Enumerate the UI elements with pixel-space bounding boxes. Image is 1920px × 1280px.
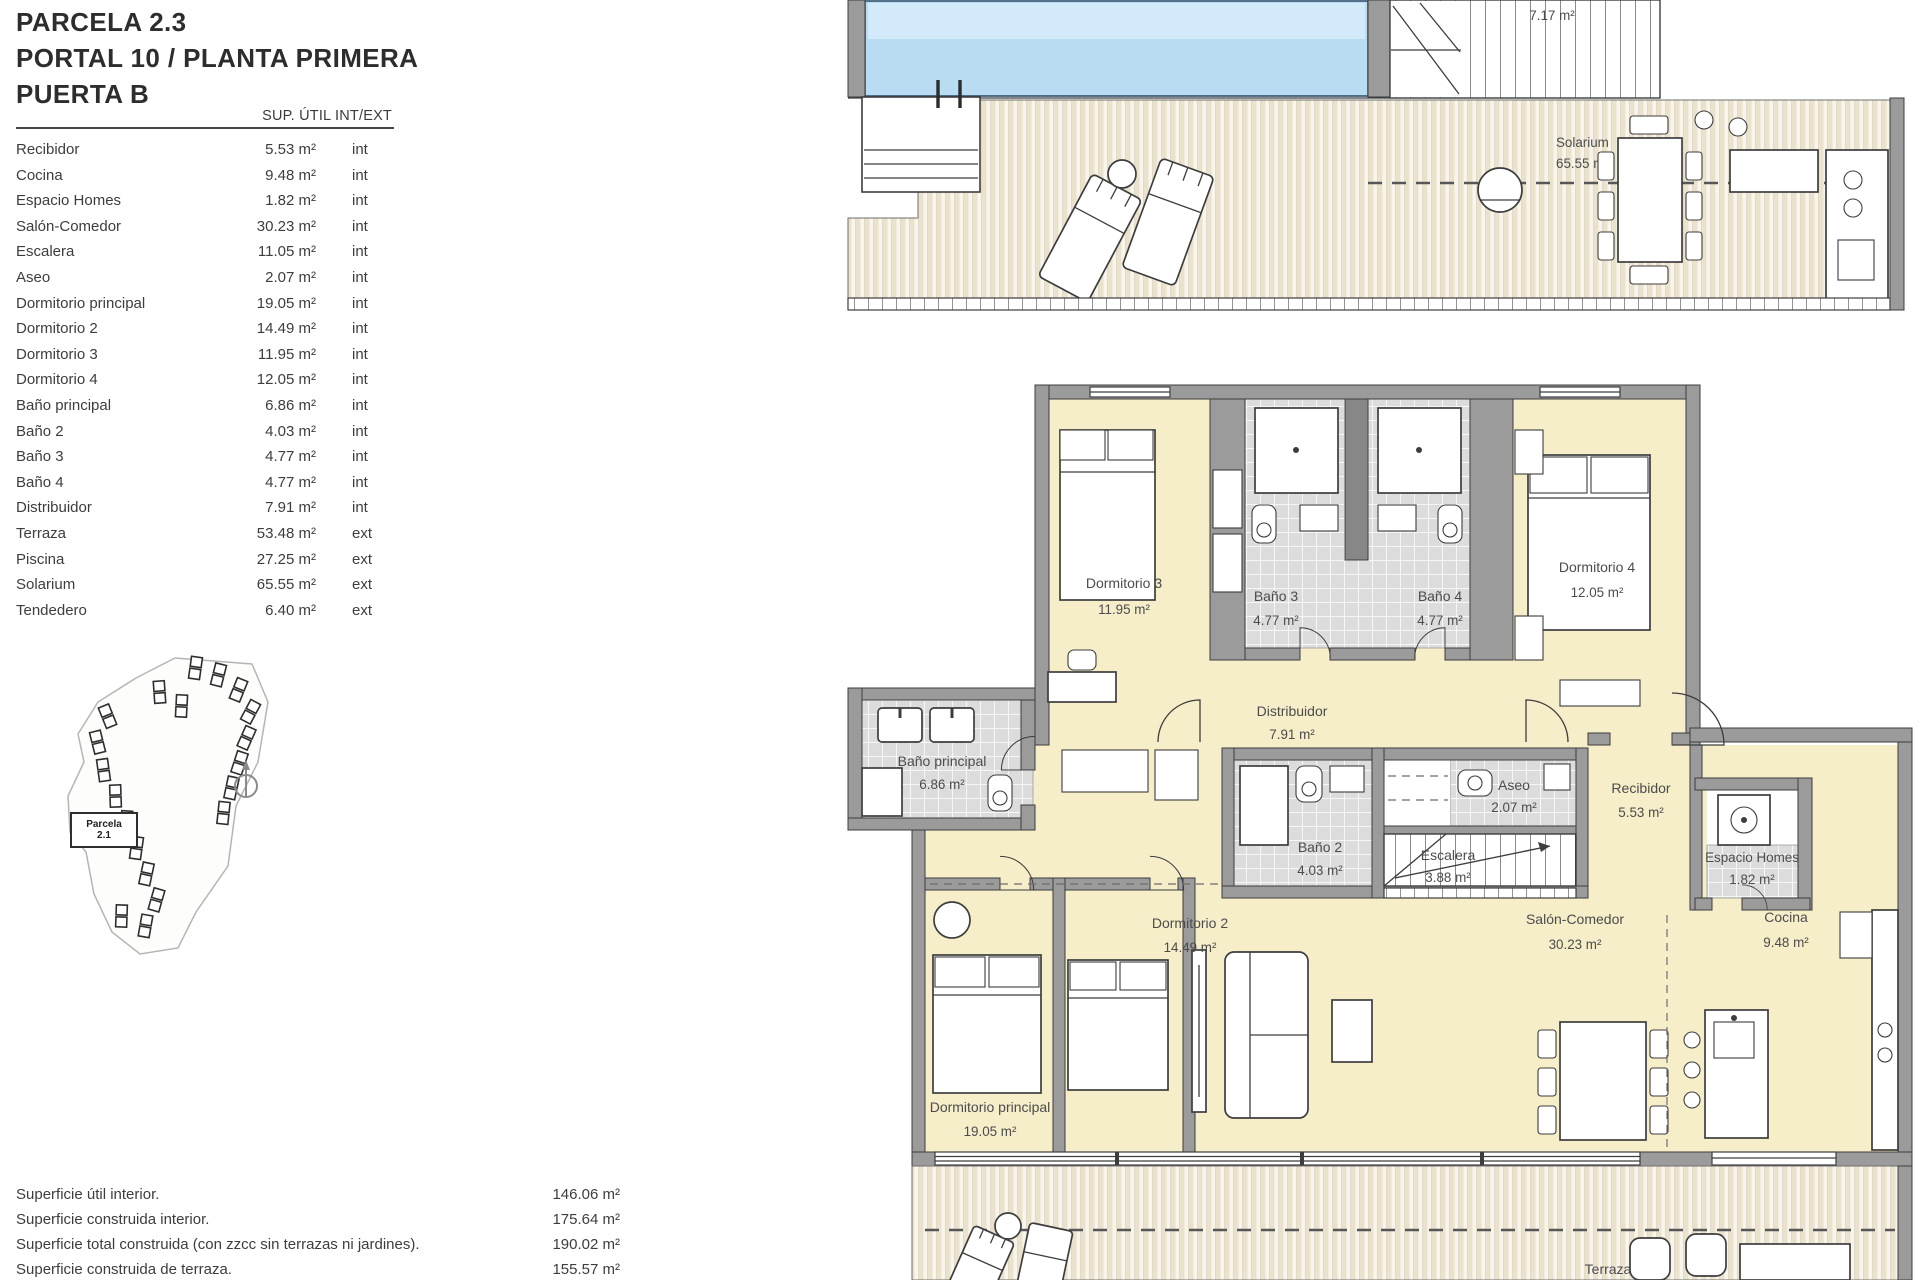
svg-text:30.23 m²: 30.23 m² bbox=[1549, 937, 1602, 952]
pool-steps-icon bbox=[862, 80, 980, 192]
room-name: Dormitorio 2 bbox=[16, 320, 201, 337]
stair-void bbox=[1384, 760, 1450, 826]
terrace-chair-icon bbox=[1686, 1234, 1726, 1276]
svg-text:Escalera: Escalera bbox=[1421, 847, 1476, 863]
summary-value: 190.02 m² bbox=[490, 1236, 620, 1253]
shower-icon bbox=[1378, 408, 1461, 493]
sink-icon bbox=[1378, 505, 1416, 531]
sofa-icon bbox=[1225, 952, 1308, 1118]
closet-icon bbox=[1155, 750, 1198, 800]
washing-machine-icon bbox=[1718, 795, 1770, 845]
svg-text:19.05 m²: 19.05 m² bbox=[964, 1124, 1017, 1139]
room-name: Dormitorio principal bbox=[16, 295, 201, 312]
table-row: Terraza 53.48 m² ext bbox=[16, 525, 394, 551]
room-area-type: int bbox=[316, 346, 394, 363]
table-row: Dormitorio principal 19.05 m² int bbox=[16, 295, 394, 321]
svg-text:14.49 m²: 14.49 m² bbox=[1164, 940, 1217, 955]
room-area-type: int bbox=[316, 192, 394, 209]
summary-label: Superficie construida de terraza. bbox=[16, 1261, 490, 1278]
svg-text:Dormitorio principal: Dormitorio principal bbox=[930, 1099, 1051, 1115]
site-boundary bbox=[68, 658, 268, 954]
wardrobe-icon bbox=[1213, 534, 1242, 592]
table-row: Piscina 27.25 m² ext bbox=[16, 551, 394, 577]
areas-table-header: SUP. ÚTIL INT/EXT bbox=[16, 108, 394, 124]
svg-text:6.86 m²: 6.86 m² bbox=[919, 777, 965, 792]
room-area: 7.91 m² bbox=[201, 499, 316, 516]
room-area-type: int bbox=[316, 295, 394, 312]
room-name: Distribuidor bbox=[16, 499, 201, 516]
floor-plan-sheet: PARCELA 2.3 PORTAL 10 / PLANTA PRIMERA P… bbox=[0, 0, 1920, 1280]
summary-value: 155.57 m² bbox=[490, 1261, 620, 1278]
room-area-type: int bbox=[316, 218, 394, 235]
svg-text:Baño principal: Baño principal bbox=[898, 753, 987, 769]
svg-text:Cocina: Cocina bbox=[1764, 909, 1808, 925]
toilet-icon bbox=[1296, 766, 1322, 802]
toilet-icon bbox=[1252, 505, 1276, 543]
terrace-chair-icon bbox=[1630, 1238, 1670, 1280]
nightstand-icon bbox=[1515, 430, 1543, 474]
sink-icon bbox=[1330, 766, 1364, 792]
stairs-area-label: 7.17 m² bbox=[1529, 8, 1575, 23]
svg-text:Espacio Homes: Espacio Homes bbox=[1705, 850, 1799, 865]
svg-text:Baño 3: Baño 3 bbox=[1254, 588, 1299, 604]
title-parcela: PARCELA 2.3 bbox=[16, 4, 418, 40]
svg-text:Dormitorio 3: Dormitorio 3 bbox=[1086, 575, 1162, 591]
tv-unit-icon bbox=[1192, 950, 1206, 1112]
summary-row: Superficie construida de terraza. 155.57… bbox=[16, 1261, 620, 1280]
room-area: 27.25 m² bbox=[201, 551, 316, 568]
round-chair-icon bbox=[934, 902, 970, 938]
room-name: Baño 4 bbox=[16, 474, 201, 491]
svg-text:Baño 4: Baño 4 bbox=[1418, 588, 1463, 604]
parcel-label-line1: Parcela bbox=[86, 819, 122, 830]
shower-icon bbox=[1255, 408, 1338, 493]
table-row: Solarium 65.55 m² ext bbox=[16, 576, 394, 602]
room-name: Baño 3 bbox=[16, 448, 201, 465]
bed-icon bbox=[1528, 455, 1650, 630]
room-name: Tendedero bbox=[16, 602, 201, 619]
table-rule bbox=[16, 127, 394, 129]
svg-text:11.95 m²: 11.95 m² bbox=[1098, 602, 1150, 617]
table-row: Dormitorio 3 11.95 m² int bbox=[16, 346, 394, 372]
toilet-icon bbox=[1458, 770, 1492, 796]
summary-label: Superficie total construida (con zzcc si… bbox=[16, 1236, 490, 1253]
svg-text:Dormitorio 2: Dormitorio 2 bbox=[1152, 915, 1228, 931]
room-area: 19.05 m² bbox=[201, 295, 316, 312]
room-name: Dormitorio 3 bbox=[16, 346, 201, 363]
armchair-icon bbox=[1478, 168, 1522, 212]
svg-text:Salón-Comedor: Salón-Comedor bbox=[1526, 911, 1624, 927]
table-row: Cocina 9.48 m² int bbox=[16, 167, 394, 193]
room-area-type: int bbox=[316, 243, 394, 260]
room-area: 6.86 m² bbox=[201, 397, 316, 414]
room-area: 11.05 m² bbox=[201, 243, 316, 260]
room-area: 4.77 m² bbox=[201, 448, 316, 465]
svg-text:1.82 m²: 1.82 m² bbox=[1729, 872, 1775, 887]
corner-sink-icon bbox=[1544, 764, 1570, 790]
svg-text:4.77 m²: 4.77 m² bbox=[1253, 613, 1299, 628]
terrace: Terraza bbox=[912, 1166, 1912, 1280]
nightstand-icon bbox=[1515, 616, 1543, 660]
room-area-type: ext bbox=[316, 525, 394, 542]
room-name: Cocina bbox=[16, 167, 201, 184]
table-row: Dormitorio 4 12.05 m² int bbox=[16, 371, 394, 397]
summary-label: Superficie útil interior. bbox=[16, 1186, 490, 1203]
shower-icon bbox=[862, 768, 902, 816]
shaft bbox=[1345, 399, 1368, 560]
svg-text:5.53 m²: 5.53 m² bbox=[1618, 805, 1664, 820]
room-name: Terraza bbox=[16, 525, 201, 542]
railing bbox=[848, 298, 1890, 310]
room-area: 2.07 m² bbox=[201, 269, 316, 286]
room-area-type: int bbox=[316, 499, 394, 516]
parcel-label: Parcela 2.1 bbox=[70, 812, 138, 848]
room-label-terraza: Terraza bbox=[1585, 1261, 1632, 1277]
room-name: Aseo bbox=[16, 269, 201, 286]
svg-text:7.91 m²: 7.91 m² bbox=[1269, 727, 1315, 742]
room-area: 5.53 m² bbox=[201, 141, 316, 158]
room-area-type: int bbox=[316, 167, 394, 184]
summary-value: 146.06 m² bbox=[490, 1186, 620, 1203]
room-area-type: int bbox=[316, 448, 394, 465]
summary-row: Superficie total construida (con zzcc si… bbox=[16, 1236, 620, 1261]
room-area-type: int bbox=[316, 474, 394, 491]
room-area: 30.23 m² bbox=[201, 218, 316, 235]
room-name: Baño principal bbox=[16, 397, 201, 414]
room-area: 12.05 m² bbox=[201, 371, 316, 388]
room-area-type: ext bbox=[316, 551, 394, 568]
table-row: Baño 2 4.03 m² int bbox=[16, 423, 394, 449]
svg-text:Dormitorio 4: Dormitorio 4 bbox=[1559, 559, 1635, 575]
bench-icon bbox=[1560, 680, 1640, 706]
room-area: 14.49 m² bbox=[201, 320, 316, 337]
wardrobe-icon bbox=[1213, 470, 1242, 528]
terrace-sofa-icon bbox=[1740, 1244, 1850, 1280]
table-row: Baño principal 6.86 m² int bbox=[16, 397, 394, 423]
room-name: Dormitorio 4 bbox=[16, 371, 201, 388]
closet-icon bbox=[1062, 750, 1148, 792]
room-area: 11.95 m² bbox=[201, 346, 316, 363]
coffee-table-icon bbox=[1332, 1000, 1372, 1062]
main-floor-plan: Terraza Dormitorio 311.95 m² Baño 34.77 … bbox=[840, 365, 1920, 1280]
toilet-icon bbox=[988, 775, 1012, 811]
room-area: 1.82 m² bbox=[201, 192, 316, 209]
sink-icon bbox=[1300, 505, 1338, 531]
room-area: 4.77 m² bbox=[201, 474, 316, 491]
areas-table: SUP. ÚTIL INT/EXT Recibidor 5.53 m² int … bbox=[16, 108, 394, 627]
room-area: 53.48 m² bbox=[201, 525, 316, 542]
table-row: Escalera 11.05 m² int bbox=[16, 243, 394, 269]
room-area: 9.48 m² bbox=[201, 167, 316, 184]
svg-text:Baño 2: Baño 2 bbox=[1298, 839, 1343, 855]
solarium-name-label: Solarium bbox=[1556, 135, 1609, 150]
svg-text:9.48 m²: 9.48 m² bbox=[1763, 935, 1809, 950]
room-area-type: int bbox=[316, 397, 394, 414]
room-area-type: int bbox=[316, 371, 394, 388]
room-name: Salón-Comedor bbox=[16, 218, 201, 235]
side-table-icon bbox=[1108, 160, 1136, 188]
table-row: Distribuidor 7.91 m² int bbox=[16, 499, 394, 525]
room-area: 65.55 m² bbox=[201, 576, 316, 593]
summary-value: 175.64 m² bbox=[490, 1211, 620, 1228]
table-row: Baño 4 4.77 m² int bbox=[16, 474, 394, 500]
parcel-label-line2: 2.1 bbox=[97, 830, 111, 841]
table-row: Aseo 2.07 m² int bbox=[16, 269, 394, 295]
areas-table-rows: Recibidor 5.53 m² int Cocina 9.48 m² int… bbox=[16, 141, 394, 627]
room-area-type: int bbox=[316, 141, 394, 158]
table-row: Baño 3 4.77 m² int bbox=[16, 448, 394, 474]
site-plan bbox=[40, 640, 310, 980]
svg-text:3.88 m²: 3.88 m² bbox=[1425, 870, 1471, 885]
room-area-type: int bbox=[316, 423, 394, 440]
room-area: 4.03 m² bbox=[201, 423, 316, 440]
summary-label: Superficie construida interior. bbox=[16, 1211, 490, 1228]
room-name: Escalera bbox=[16, 243, 201, 260]
table-row: Recibidor 5.53 m² int bbox=[16, 141, 394, 167]
svg-text:4.77 m²: 4.77 m² bbox=[1417, 613, 1463, 628]
bed-icon bbox=[933, 955, 1041, 1093]
table-row: Tendedero 6.40 m² ext bbox=[16, 602, 394, 628]
title-portal-planta: PORTAL 10 / PLANTA PRIMERA bbox=[16, 40, 418, 76]
side-table-icon bbox=[995, 1213, 1021, 1239]
svg-text:Recibidor: Recibidor bbox=[1611, 780, 1670, 796]
summary-row: Superficie construida interior. 175.64 m… bbox=[16, 1211, 620, 1236]
room-area-type: ext bbox=[316, 576, 394, 593]
room-area-type: int bbox=[316, 269, 394, 286]
solarium-plan: 7.17 m² Solarium 65.55 m² bbox=[840, 0, 1920, 340]
room-name: Baño 2 bbox=[16, 423, 201, 440]
table-row: Dormitorio 2 14.49 m² int bbox=[16, 320, 394, 346]
room-area: 6.40 m² bbox=[201, 602, 316, 619]
surface-summary: Superficie útil interior. 146.06 m² Supe… bbox=[16, 1186, 620, 1280]
bed-icon bbox=[1068, 960, 1168, 1090]
room-name: Solarium bbox=[16, 576, 201, 593]
table-row: Espacio Homes 1.82 m² int bbox=[16, 192, 394, 218]
room-area-type: int bbox=[316, 320, 394, 337]
shower-icon bbox=[1240, 766, 1288, 845]
svg-text:4.03 m²: 4.03 m² bbox=[1297, 863, 1343, 878]
side-wall bbox=[1890, 98, 1904, 310]
svg-text:12.05 m²: 12.05 m² bbox=[1571, 585, 1624, 600]
page-title: PARCELA 2.3 PORTAL 10 / PLANTA PRIMERA P… bbox=[16, 4, 418, 112]
room-name: Recibidor bbox=[16, 141, 201, 158]
table-row: Salón-Comedor 30.23 m² int bbox=[16, 218, 394, 244]
room-area-type: ext bbox=[316, 602, 394, 619]
summary-row: Superficie útil interior. 146.06 m² bbox=[16, 1186, 620, 1211]
toilet-icon bbox=[1438, 505, 1462, 543]
svg-text:2.07 m²: 2.07 m² bbox=[1491, 800, 1537, 815]
room-name: Espacio Homes bbox=[16, 192, 201, 209]
svg-text:Distribuidor: Distribuidor bbox=[1257, 703, 1328, 719]
title-puerta: PUERTA B bbox=[16, 76, 418, 112]
svg-text:Aseo: Aseo bbox=[1498, 777, 1530, 793]
solarium-stairs-icon: 7.17 m² bbox=[1390, 0, 1660, 98]
room-name: Piscina bbox=[16, 551, 201, 568]
